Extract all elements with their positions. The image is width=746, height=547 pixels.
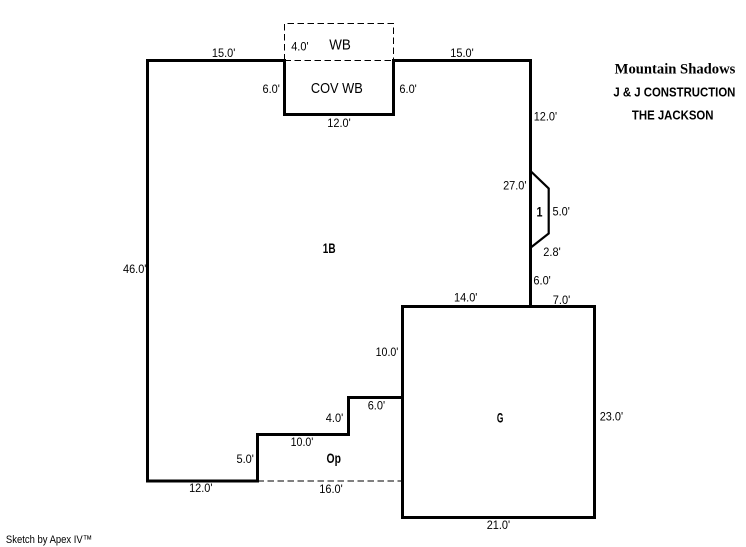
svg-text:4.0': 4.0' — [326, 411, 343, 425]
svg-text:4.0': 4.0' — [291, 40, 308, 54]
svg-text:27.0': 27.0' — [503, 178, 526, 192]
svg-text:12.0': 12.0' — [534, 109, 557, 123]
svg-text:46.0': 46.0' — [123, 262, 146, 276]
svg-text:2.8': 2.8' — [543, 245, 560, 259]
svg-text:14.0': 14.0' — [454, 291, 477, 305]
svg-text:12.0': 12.0' — [327, 116, 350, 130]
svg-text:15.0': 15.0' — [212, 46, 235, 60]
svg-text:21.0': 21.0' — [487, 518, 510, 532]
svg-text:Sketch by Apex IV™: Sketch by Apex IV™ — [6, 534, 92, 546]
svg-text:16.0': 16.0' — [319, 482, 342, 496]
svg-text:6.0': 6.0' — [399, 82, 416, 96]
svg-text:Mountain Shadows: Mountain Shadows — [615, 62, 736, 78]
svg-text:THE JACKSON: THE JACKSON — [632, 107, 714, 122]
svg-text:COV WB: COV WB — [311, 81, 363, 97]
svg-text:7.0': 7.0' — [553, 293, 570, 307]
svg-text:15.0': 15.0' — [450, 46, 473, 60]
svg-text:23.0': 23.0' — [600, 409, 623, 423]
svg-text:10.0': 10.0' — [291, 435, 314, 449]
svg-text:J & J CONSTRUCTION: J & J CONSTRUCTION — [613, 84, 735, 99]
svg-text:6.0': 6.0' — [263, 82, 280, 96]
svg-text:1: 1 — [537, 204, 543, 219]
svg-text:Op: Op — [327, 451, 341, 466]
svg-text:G: G — [497, 410, 504, 425]
svg-text:5.0': 5.0' — [553, 205, 570, 219]
svg-text:1B: 1B — [323, 241, 336, 256]
svg-text:6.0': 6.0' — [368, 399, 385, 413]
svg-text:WB: WB — [329, 38, 351, 54]
svg-text:5.0': 5.0' — [237, 452, 254, 466]
svg-text:12.0': 12.0' — [189, 481, 212, 495]
svg-text:6.0': 6.0' — [533, 274, 550, 288]
svg-text:10.0': 10.0' — [376, 345, 399, 359]
